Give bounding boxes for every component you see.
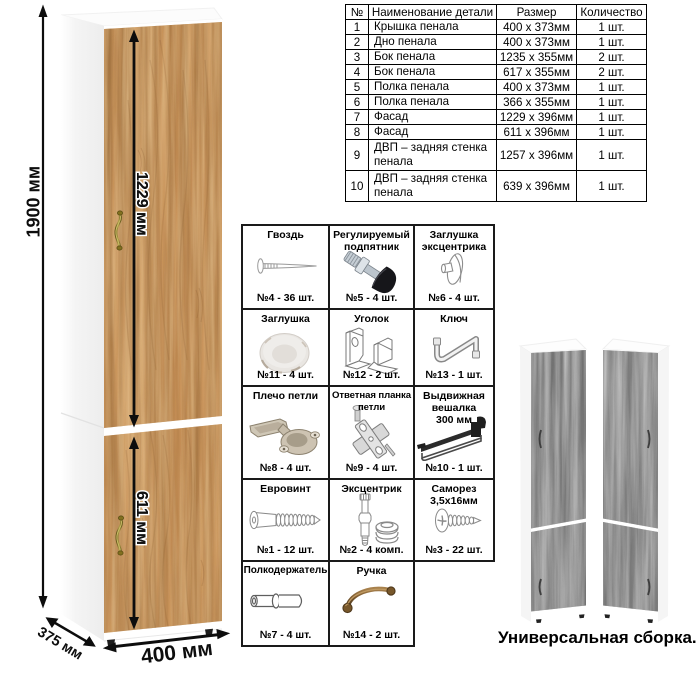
svg-text:611 мм: 611 мм xyxy=(133,491,150,545)
svg-text:1900 мм: 1900 мм xyxy=(24,166,44,238)
svg-text:1229 мм: 1229 мм xyxy=(133,172,150,236)
svg-text:375 мм: 375 мм xyxy=(34,624,85,663)
